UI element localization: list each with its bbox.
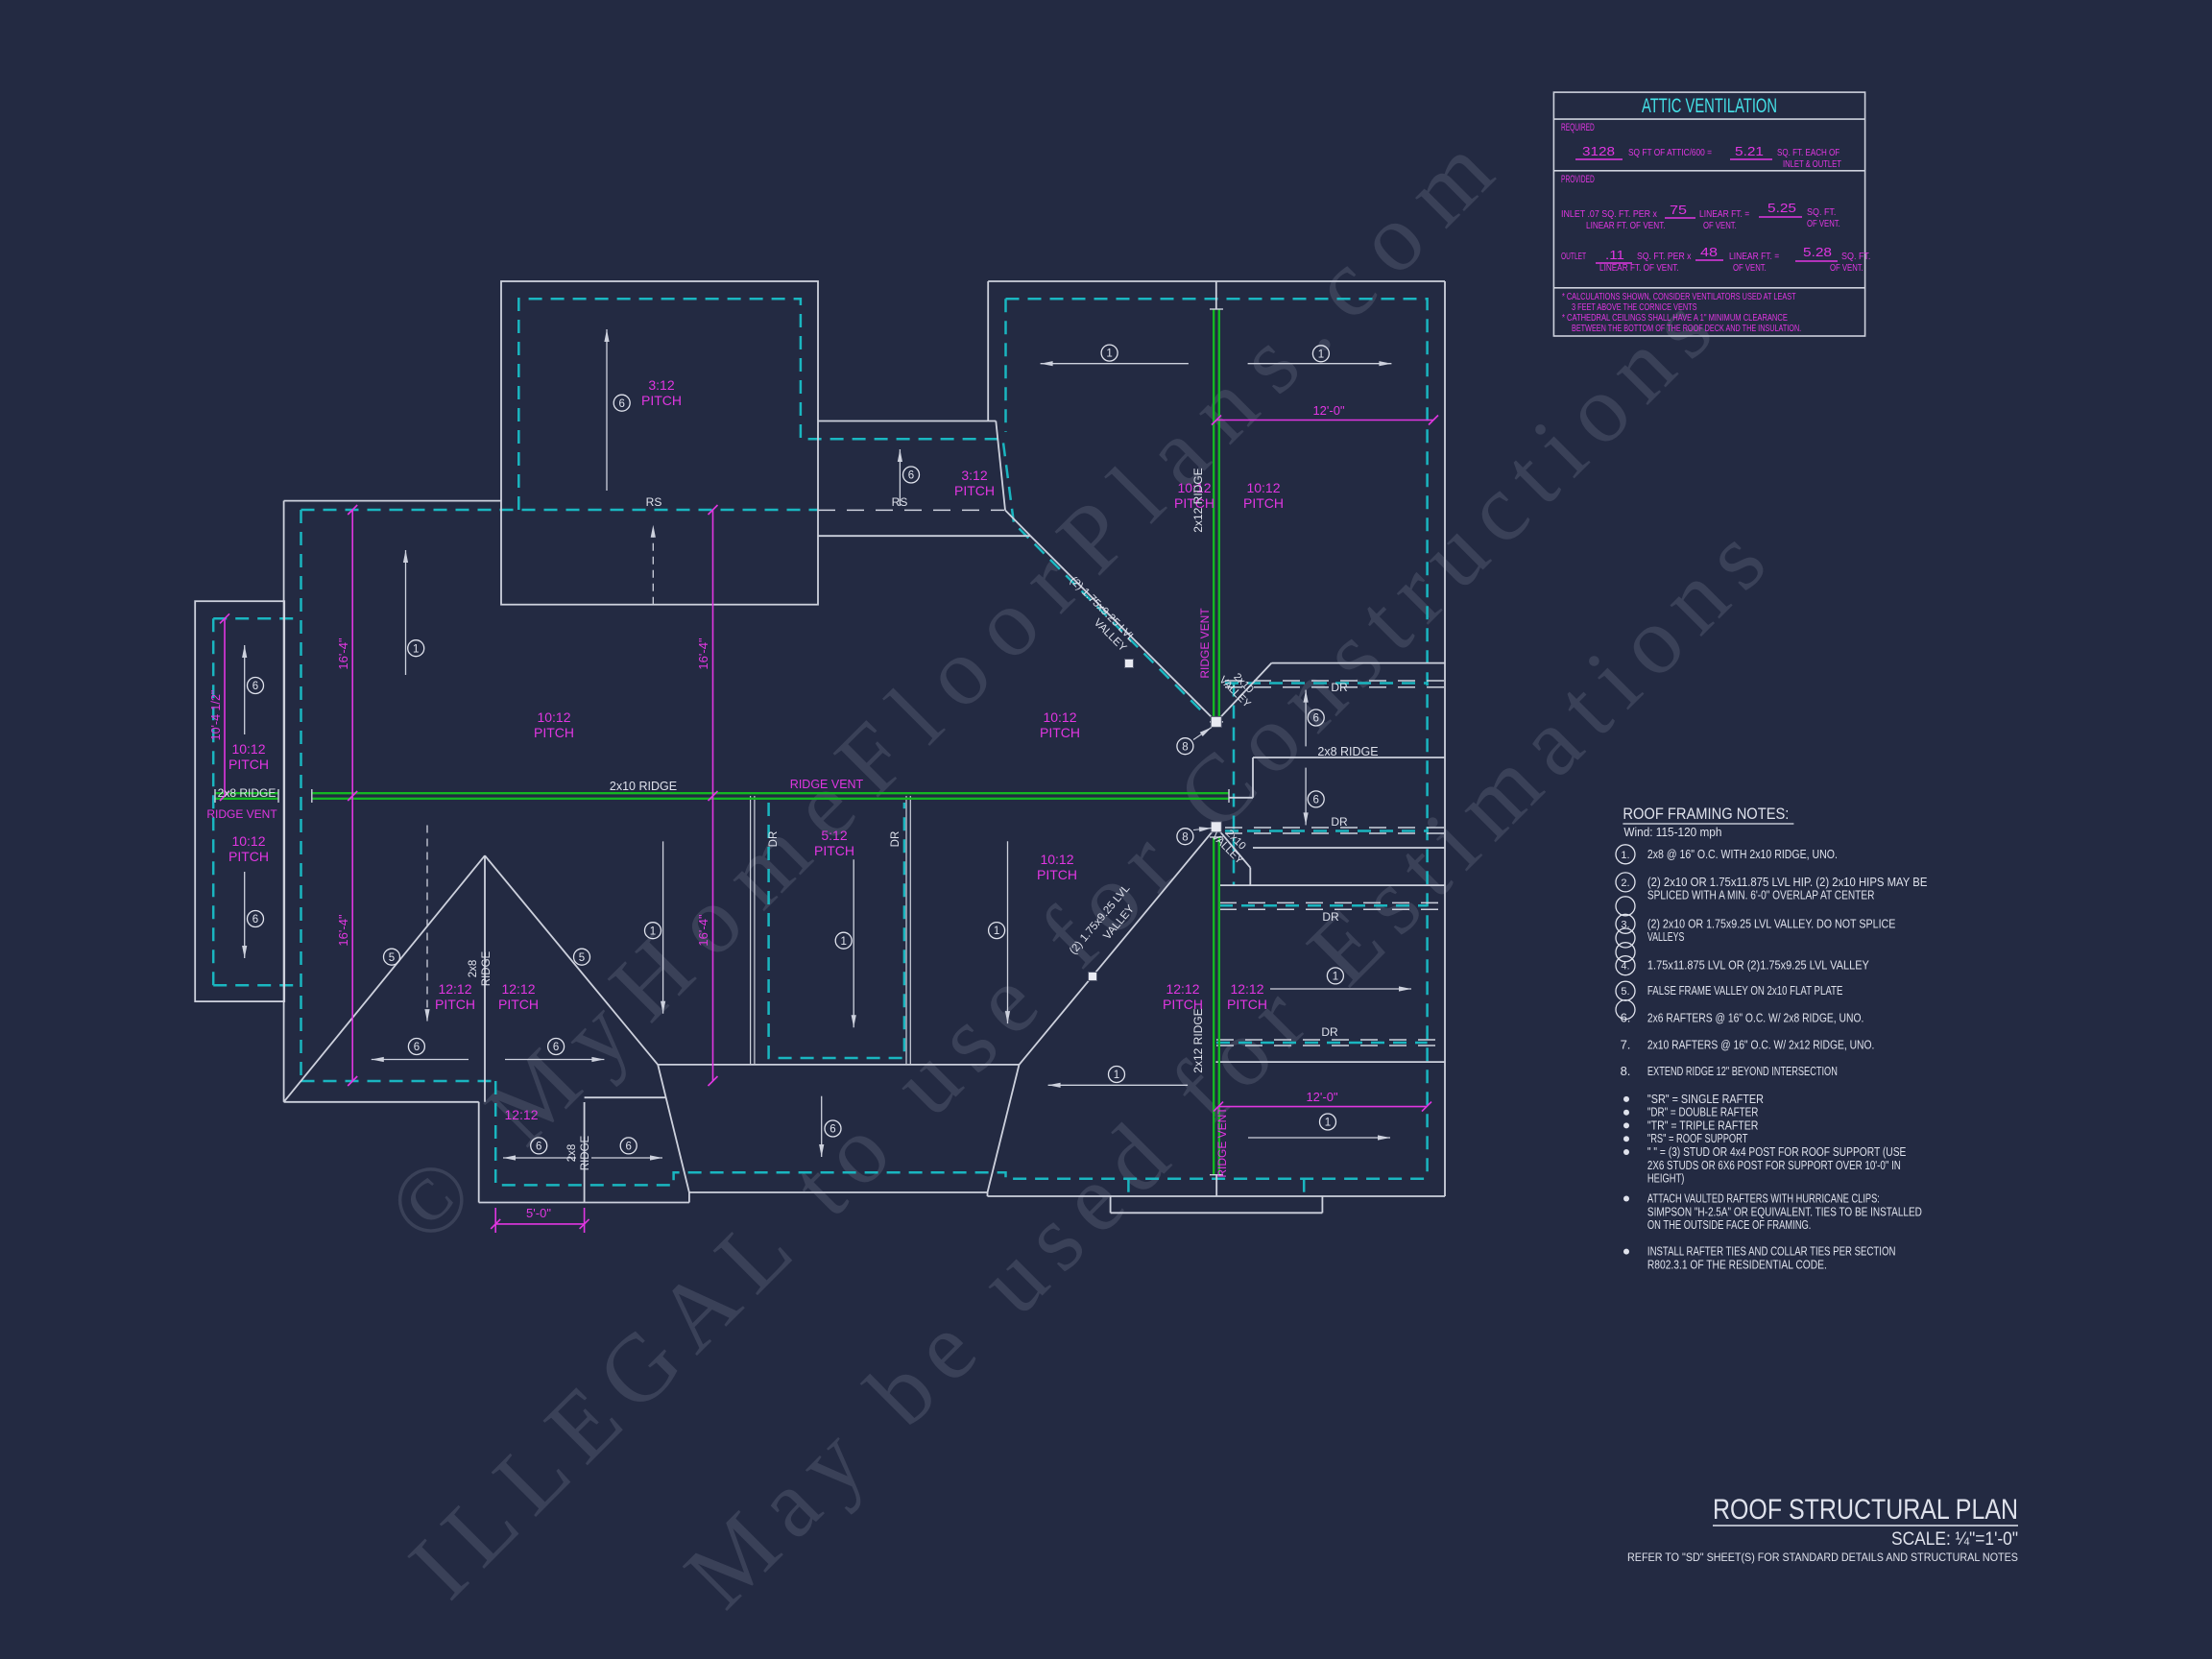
svg-text:12:12: 12:12 xyxy=(1230,981,1263,997)
svg-text:(2) 2x10 OR 1.75x11.875 LVL HI: (2) 2x10 OR 1.75x11.875 LVL HIP. (2) 2x1… xyxy=(1647,876,1928,889)
svg-text:RIDGE VENT: RIDGE VENT xyxy=(1198,608,1212,679)
svg-text:INSTALL RAFTER TIES AND COLLAR: INSTALL RAFTER TIES AND COLLAR TIES PER … xyxy=(1647,1245,1896,1259)
svg-text:6: 6 xyxy=(618,398,624,410)
svg-text:10'-4 1/2": 10'-4 1/2" xyxy=(209,690,223,741)
svg-text:2.: 2. xyxy=(1621,878,1629,889)
svg-text:SCALE: ¼"=1'-0": SCALE: ¼"=1'-0" xyxy=(1891,1529,2018,1550)
svg-text:SQ. FT. PER x: SQ. FT. PER x xyxy=(1637,251,1692,262)
svg-text:SQ FT OF ATTIC/600 =: SQ FT OF ATTIC/600 = xyxy=(1628,147,1712,158)
svg-text:10:12: 10:12 xyxy=(1040,852,1073,867)
svg-text:5: 5 xyxy=(579,952,585,964)
svg-text:6: 6 xyxy=(414,1042,420,1053)
svg-text:10:12: 10:12 xyxy=(231,833,265,849)
svg-text:REFER TO "SD" SHEET(S) FOR STA: REFER TO "SD" SHEET(S) FOR STANDARD DETA… xyxy=(1627,1551,2018,1564)
svg-text:5.25: 5.25 xyxy=(1767,202,1796,215)
svg-text:INLET & OUTLET: INLET & OUTLET xyxy=(1783,158,1841,170)
svg-text:"RS" = ROOF SUPPORT: "RS" = ROOF SUPPORT xyxy=(1647,1132,1748,1145)
svg-text:12:12: 12:12 xyxy=(438,981,471,997)
svg-text:8: 8 xyxy=(1182,831,1188,843)
svg-text:12:12: 12:12 xyxy=(1166,981,1199,997)
svg-text:PROVIDED: PROVIDED xyxy=(1561,174,1595,185)
svg-text:2x8: 2x8 xyxy=(468,960,479,978)
svg-text:BETWEEN THE BOTTOM OF THE ROOF: BETWEEN THE BOTTOM OF THE ROOF DECK AND … xyxy=(1572,323,1801,334)
svg-text:ROOF STRUCTURAL PLAN: ROOF STRUCTURAL PLAN xyxy=(1713,1494,2018,1526)
svg-text:1: 1 xyxy=(1114,1070,1119,1081)
svg-text:SPLICED WITH A MIN. 6'-0" OVER: SPLICED WITH A MIN. 6'-0" OVERLAP AT CEN… xyxy=(1647,889,1875,902)
svg-text:PITCH: PITCH xyxy=(641,393,682,408)
svg-text:DR: DR xyxy=(1321,1025,1338,1039)
svg-text:12:12: 12:12 xyxy=(504,1107,538,1122)
svg-text:2x8 @ 16" O.C. WITH 2x10 RIDGE: 2x8 @ 16" O.C. WITH 2x10 RIDGE, UNO. xyxy=(1647,848,1838,861)
svg-text:5'-0": 5'-0" xyxy=(526,1206,551,1220)
svg-text:DR: DR xyxy=(1322,910,1339,924)
svg-text:PITCH: PITCH xyxy=(228,849,269,864)
svg-text:PITCH: PITCH xyxy=(435,997,475,1012)
svg-text:8: 8 xyxy=(1182,741,1188,753)
svg-text:3:12: 3:12 xyxy=(961,468,987,483)
svg-text:DR: DR xyxy=(890,831,902,848)
svg-text:3128: 3128 xyxy=(1582,145,1615,158)
svg-text:PITCH: PITCH xyxy=(228,757,269,772)
svg-text:6: 6 xyxy=(1312,795,1318,806)
svg-text:6: 6 xyxy=(252,914,258,926)
svg-text:1: 1 xyxy=(840,936,846,948)
svg-text:6: 6 xyxy=(536,1142,541,1153)
svg-text:1.: 1. xyxy=(1621,850,1629,861)
svg-text:7.: 7. xyxy=(1621,1037,1631,1051)
svg-text:ATTIC VENTILATION: ATTIC VENTILATION xyxy=(1642,95,1777,117)
svg-text:DR: DR xyxy=(1331,681,1348,694)
svg-text:ROOF FRAMING NOTES:: ROOF FRAMING NOTES: xyxy=(1623,805,1789,823)
svg-text:10:12: 10:12 xyxy=(231,741,265,757)
svg-text:6: 6 xyxy=(1312,713,1318,725)
svg-text:LINEAR FT. OF VENT.: LINEAR FT. OF VENT. xyxy=(1599,262,1679,274)
svg-text:" " = (3) STUD OR 4x4 POST FO: " " = (3) STUD OR 4x4 POST FOR ROOF SUPP… xyxy=(1647,1145,1907,1159)
svg-text:16'-4": 16'-4" xyxy=(336,637,350,670)
svg-text:12'-0": 12'-0" xyxy=(1306,1090,1338,1104)
svg-text:2x10 RIDGE: 2x10 RIDGE xyxy=(610,780,677,793)
svg-text:RIDGE VENT: RIDGE VENT xyxy=(790,778,864,791)
svg-text:12'-0": 12'-0" xyxy=(1312,403,1345,418)
svg-text:SQ. FT. EACH OF: SQ. FT. EACH OF xyxy=(1777,147,1839,158)
svg-text:EXTEND RIDGE 12" BEYOND INTERS: EXTEND RIDGE 12" BEYOND INTERSECTION xyxy=(1647,1065,1838,1078)
svg-text:5: 5 xyxy=(389,952,395,964)
svg-text:SQ. FT.: SQ. FT. xyxy=(1841,251,1870,262)
svg-text:6: 6 xyxy=(625,1142,631,1153)
svg-text:PITCH: PITCH xyxy=(954,483,995,498)
svg-text:ON THE OUTSIDE FACE OF FRAMING: ON THE OUTSIDE FACE OF FRAMING. xyxy=(1647,1218,1812,1232)
svg-text:LINEAR FT. =: LINEAR FT. = xyxy=(1699,208,1749,220)
svg-text:DR: DR xyxy=(768,831,780,848)
svg-text:PITCH: PITCH xyxy=(814,843,854,858)
svg-text:RS: RS xyxy=(646,495,662,509)
svg-text:2x6 RAFTERS @ 16" O.C. W/ 2x8: 2x6 RAFTERS @ 16" O.C. W/ 2x8 RIDGE, UNO… xyxy=(1647,1012,1864,1025)
svg-text:HEIGHT): HEIGHT) xyxy=(1647,1172,1685,1186)
svg-text:2x10 RAFTERS @ 16" O.C. W/ 2x1: 2x10 RAFTERS @ 16" O.C. W/ 2x12 RIDGE, U… xyxy=(1647,1038,1875,1051)
svg-text:1: 1 xyxy=(1106,349,1112,360)
svg-text:1.75x11.875 LVL OR (2)1.75x9.2: 1.75x11.875 LVL OR (2)1.75x9.25 LVL VALL… xyxy=(1647,959,1870,973)
svg-text:PITCH: PITCH xyxy=(1227,997,1267,1012)
svg-text:1: 1 xyxy=(1318,349,1324,360)
svg-text:6.: 6. xyxy=(1621,1011,1631,1025)
svg-text:2x8 RIDGE: 2x8 RIDGE xyxy=(218,786,276,800)
svg-text:"DR" = DOUBLE RAFTER: "DR" = DOUBLE RAFTER xyxy=(1647,1106,1759,1119)
svg-text:SQ. FT.: SQ. FT. xyxy=(1807,206,1836,218)
svg-text:R802.3.1 OF THE RESIDENTIAL C: R802.3.1 OF THE RESIDENTIAL CODE. xyxy=(1647,1258,1827,1271)
svg-text:VALLEYS: VALLEYS xyxy=(1647,930,1685,944)
svg-text:75: 75 xyxy=(1670,204,1687,217)
svg-text:RIDGE VENT: RIDGE VENT xyxy=(206,807,277,821)
svg-text:"TR" = TRIPLE RAFTER: "TR" = TRIPLE RAFTER xyxy=(1647,1118,1759,1132)
svg-text:PITCH: PITCH xyxy=(534,725,574,740)
svg-text:"SR" = SINGLE RAFTER: "SR" = SINGLE RAFTER xyxy=(1647,1093,1764,1106)
svg-text:5.28: 5.28 xyxy=(1803,246,1832,259)
svg-text:16'-4": 16'-4" xyxy=(696,914,710,947)
svg-text:DR: DR xyxy=(1331,815,1348,829)
svg-text:OF VENT.: OF VENT. xyxy=(1830,262,1863,274)
svg-text:10:12: 10:12 xyxy=(537,709,570,725)
svg-text:2x8: 2x8 xyxy=(566,1144,578,1163)
svg-text:1: 1 xyxy=(1325,1118,1331,1129)
svg-text:12:12: 12:12 xyxy=(501,981,535,997)
svg-text:RIDGE VENT: RIDGE VENT xyxy=(1215,1107,1229,1178)
svg-text:2x12 RIDGE: 2x12 RIDGE xyxy=(1191,468,1205,532)
svg-text:Wind: 115-120 mph: Wind: 115-120 mph xyxy=(1623,825,1721,839)
svg-text:INLET .07 SQ. FT. PER x: INLET .07 SQ. FT. PER x xyxy=(1561,208,1658,220)
svg-text:PITCH: PITCH xyxy=(1243,495,1284,511)
svg-text:4.: 4. xyxy=(1621,961,1629,973)
svg-text:LINEAR FT. OF VENT.: LINEAR FT. OF VENT. xyxy=(1586,220,1666,231)
svg-text:OF VENT.: OF VENT. xyxy=(1807,218,1840,229)
svg-text:RIDGE: RIDGE xyxy=(481,950,493,986)
svg-text:1: 1 xyxy=(994,926,999,937)
svg-text:.11: .11 xyxy=(1605,249,1624,262)
svg-text:PITCH: PITCH xyxy=(1037,867,1077,882)
svg-text:PITCH: PITCH xyxy=(1040,725,1080,740)
svg-text:REQUIRED: REQUIRED xyxy=(1561,122,1595,133)
svg-text:8.: 8. xyxy=(1621,1064,1631,1078)
svg-text:PITCH: PITCH xyxy=(498,997,539,1012)
svg-text:6: 6 xyxy=(908,470,914,482)
svg-text:5.: 5. xyxy=(1621,986,1629,998)
svg-text:10:12: 10:12 xyxy=(1246,480,1280,495)
svg-text:FALSE FRAME VALLEY ON 2x10 FLA: FALSE FRAME VALLEY ON 2x10 FLAT PLATE xyxy=(1647,984,1843,998)
svg-text:6: 6 xyxy=(252,681,258,692)
svg-text:1: 1 xyxy=(1333,972,1338,983)
svg-text:(2) 2x10 OR 1.75x9.25 LVL VALL: (2) 2x10 OR 1.75x9.25 LVL VALLEY. DO NOT… xyxy=(1647,917,1896,930)
svg-text:SIMPSON "H-2.5A" OR EQUIVALENT: SIMPSON "H-2.5A" OR EQUIVALENT. TIES TO … xyxy=(1647,1205,1922,1218)
svg-text:6: 6 xyxy=(553,1042,559,1053)
svg-text:6: 6 xyxy=(829,1124,835,1136)
svg-text:OF VENT.: OF VENT. xyxy=(1733,262,1767,274)
svg-text:RIDGE: RIDGE xyxy=(580,1135,591,1170)
svg-text:10:12: 10:12 xyxy=(1043,709,1076,725)
svg-text:RS: RS xyxy=(892,495,908,509)
svg-text:1: 1 xyxy=(650,926,656,937)
svg-text:16'-4": 16'-4" xyxy=(336,914,350,947)
svg-text:OUTLET: OUTLET xyxy=(1561,251,1586,262)
svg-text:1: 1 xyxy=(413,643,419,655)
svg-text:LINEAR FT. =: LINEAR FT. = xyxy=(1729,251,1779,262)
svg-text:16'-4": 16'-4" xyxy=(696,637,710,670)
svg-text:2x8 RIDGE: 2x8 RIDGE xyxy=(1317,745,1378,758)
svg-text:ATTACH VAULTED RAFTERS WITH HU: ATTACH VAULTED RAFTERS WITH HURRICANE CL… xyxy=(1647,1192,1880,1206)
svg-text:2x12 RIDGE: 2x12 RIDGE xyxy=(1191,1008,1205,1072)
svg-text:2X6 STUDS OR 6X6 POST FOR SUPP: 2X6 STUDS OR 6X6 POST FOR SUPPORT OVER 1… xyxy=(1647,1159,1901,1172)
svg-text:48: 48 xyxy=(1700,246,1718,259)
svg-text:5.21: 5.21 xyxy=(1735,145,1764,158)
svg-text:3:12: 3:12 xyxy=(648,377,674,393)
svg-text:OF VENT.: OF VENT. xyxy=(1703,220,1737,231)
svg-text:5:12: 5:12 xyxy=(821,828,847,843)
